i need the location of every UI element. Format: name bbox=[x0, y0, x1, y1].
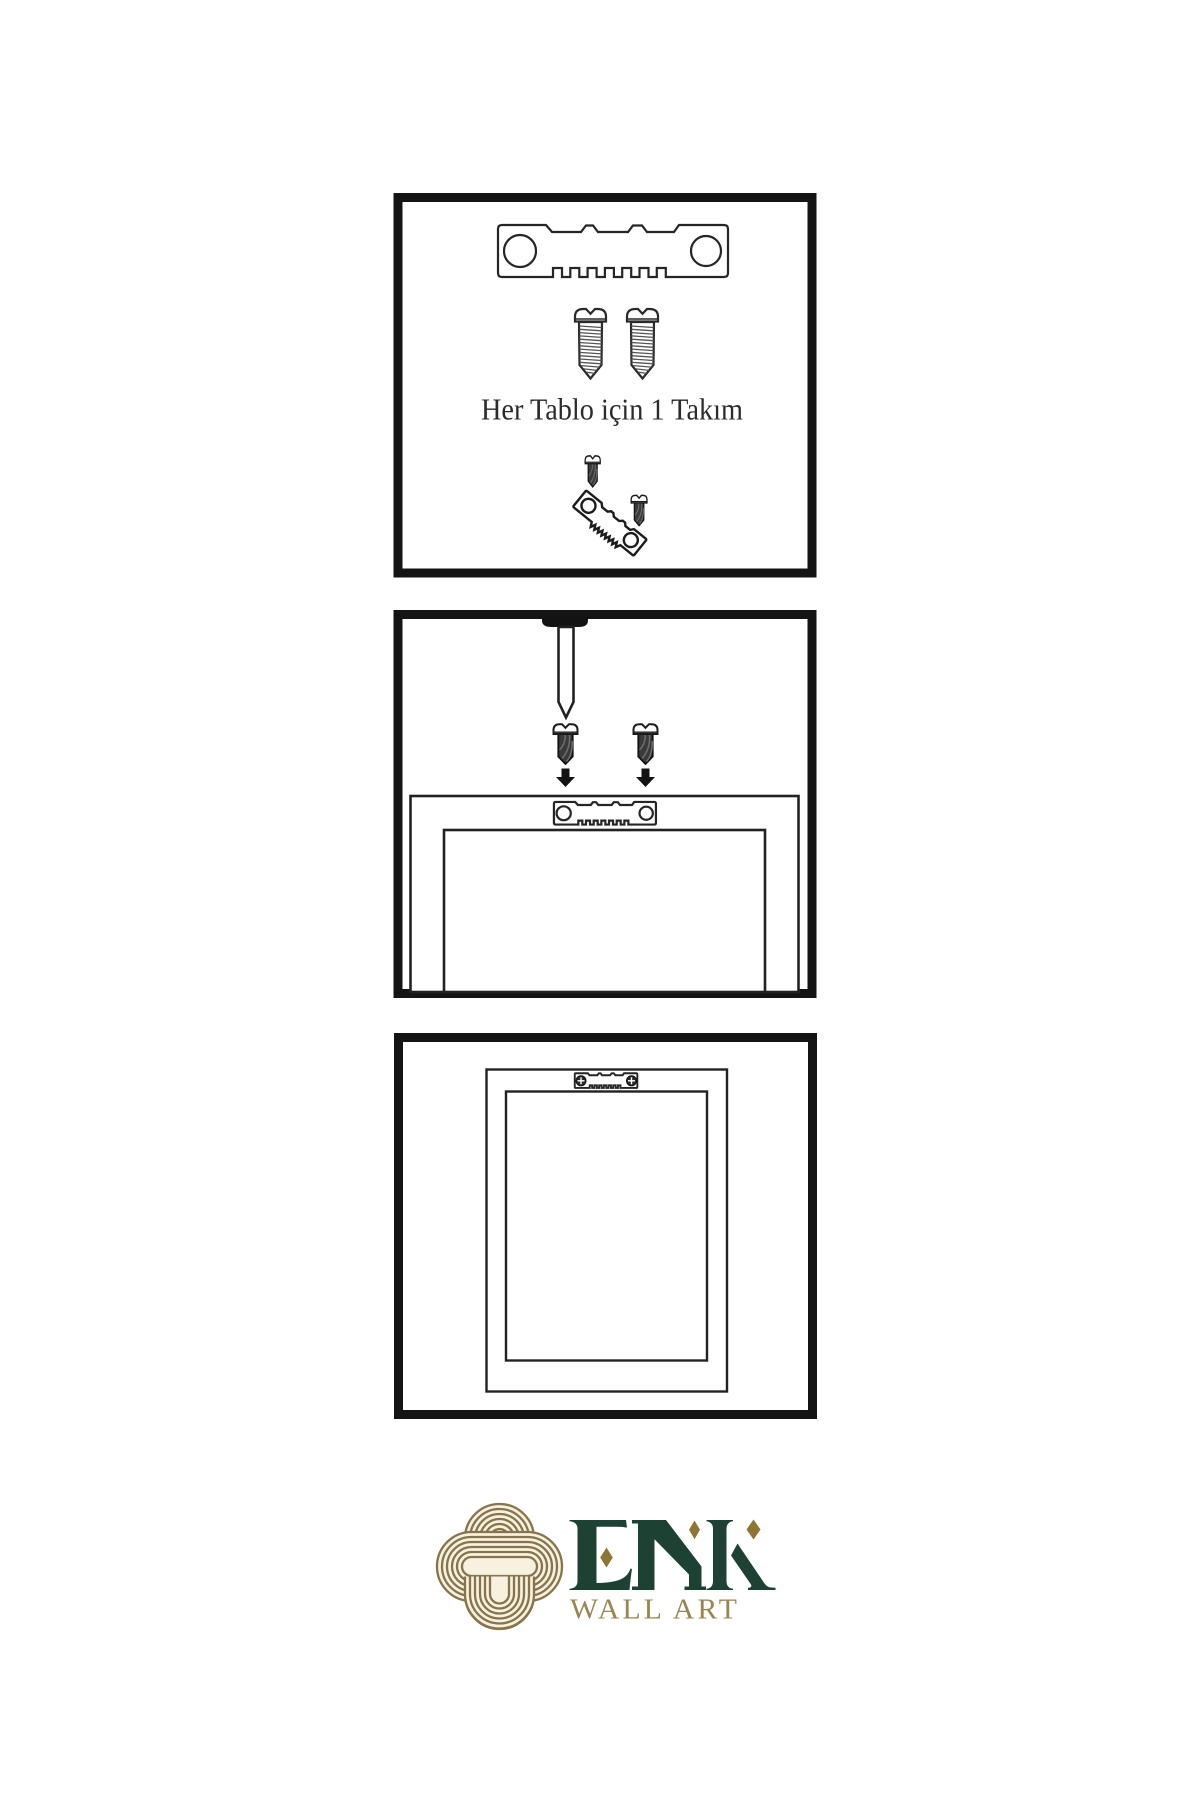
svg-text:Her Tablo için 1 Takım: Her Tablo için 1 Takım bbox=[481, 392, 743, 427]
svg-text:WALL ART: WALL ART bbox=[570, 1595, 740, 1626]
